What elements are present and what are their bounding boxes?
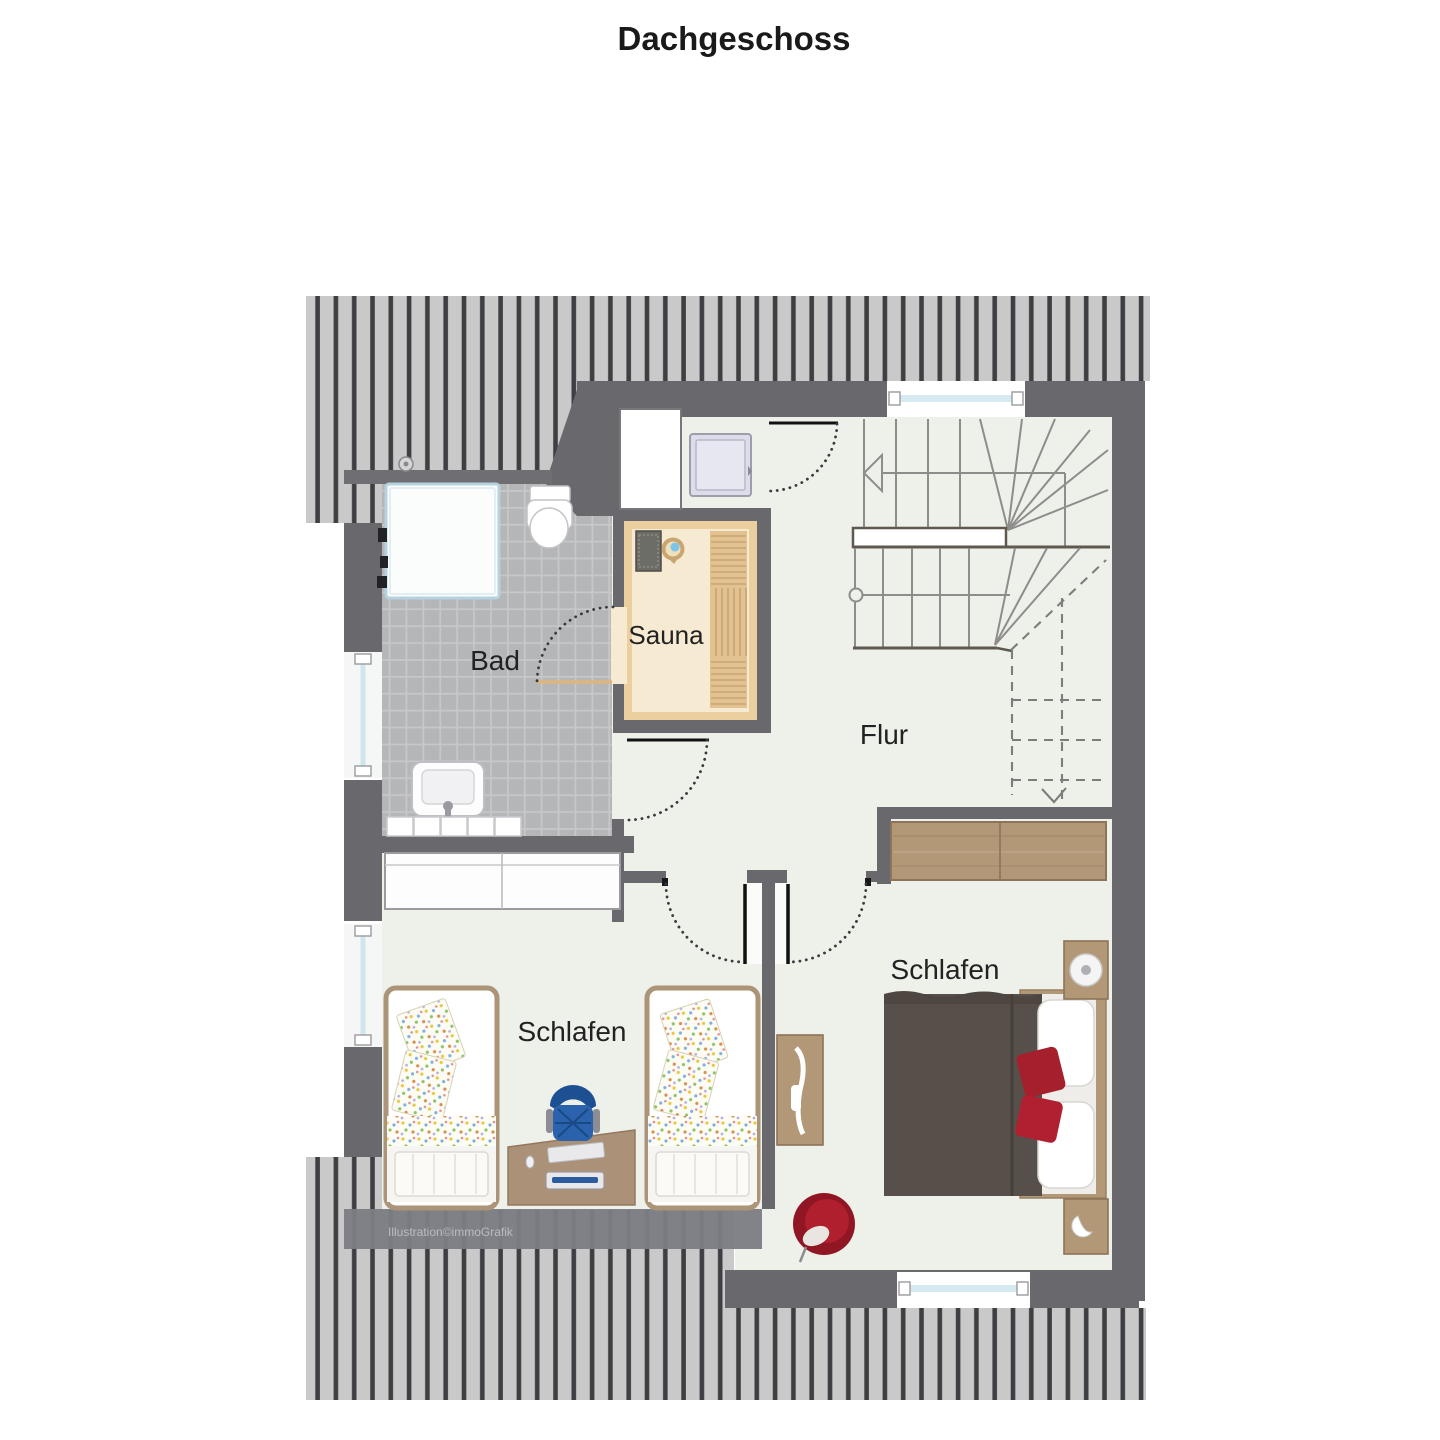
svg-text:Schlafen: Schlafen bbox=[518, 1016, 627, 1047]
svg-text:Bad: Bad bbox=[470, 645, 520, 676]
svg-text:Dachgeschoss: Dachgeschoss bbox=[618, 20, 851, 57]
svg-text:Sauna: Sauna bbox=[628, 620, 704, 650]
svg-text:Illustration©immoGrafik: Illustration©immoGrafik bbox=[388, 1225, 514, 1239]
svg-text:Schlafen: Schlafen bbox=[891, 954, 1000, 985]
svg-text:Flur: Flur bbox=[860, 719, 908, 750]
